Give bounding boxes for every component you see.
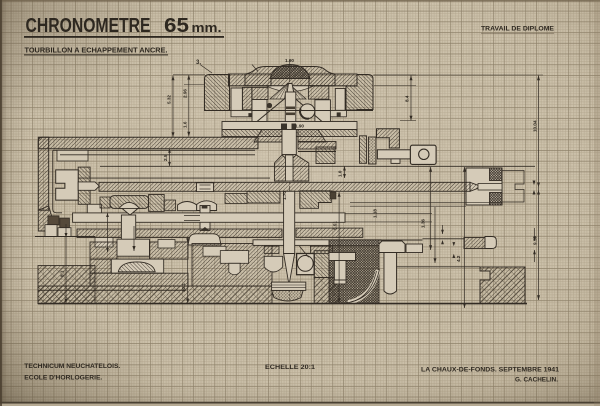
- svg-text:TECHNICUM NEUCHATELOIS.: TECHNICUM NEUCHATELOIS.: [24, 363, 120, 370]
- svg-text:1.18: 1.18: [373, 209, 378, 218]
- svg-text:65: 65: [164, 14, 189, 37]
- svg-text:1.90: 1.90: [285, 58, 294, 63]
- svg-text:mm.: mm.: [192, 20, 222, 35]
- svg-text:ECHELLE 20:1: ECHELLE 20:1: [265, 364, 315, 371]
- svg-text:1.90: 1.90: [295, 124, 304, 129]
- svg-text:9.30: 9.30: [533, 236, 538, 245]
- svg-text:1.36: 1.36: [421, 219, 426, 228]
- svg-text:1.6: 1.6: [183, 121, 188, 128]
- svg-text:2.96: 2.96: [183, 89, 188, 98]
- svg-text:10.04: 10.04: [533, 120, 538, 132]
- svg-text:TRAVAIL DE DIPLOME: TRAVAIL DE DIPLOME: [481, 26, 554, 33]
- svg-text:30.1: 30.1: [181, 283, 186, 292]
- svg-text:ECOLE D'HORLOGERIE.: ECOLE D'HORLOGERIE.: [24, 375, 102, 382]
- svg-text:1.70: 1.70: [282, 191, 287, 200]
- svg-text:5.32: 5.32: [167, 95, 172, 104]
- svg-text:8.1: 8.1: [60, 270, 65, 277]
- svg-text:5.51: 5.51: [333, 221, 338, 230]
- svg-text:G. CACHELIN.: G. CACHELIN.: [515, 377, 558, 384]
- svg-text:CHRONOMETRE: CHRONOMETRE: [26, 14, 151, 37]
- svg-text:2.5: 2.5: [163, 154, 168, 161]
- svg-text:3.: 3.: [196, 60, 201, 66]
- svg-text:LA CHAUX-DE-FONDS. SEPTEMBRE: LA CHAUX-DE-FONDS. SEPTEMBRE 1941: [421, 367, 559, 374]
- svg-text:1.0: 1.0: [338, 170, 343, 177]
- svg-text:4.2: 4.2: [456, 255, 461, 262]
- svg-text:8.4: 8.4: [405, 95, 410, 102]
- svg-text:TOURBILLON A ECHAPPEMENT ANCRE: TOURBILLON A ECHAPPEMENT ANCRE.: [25, 47, 168, 54]
